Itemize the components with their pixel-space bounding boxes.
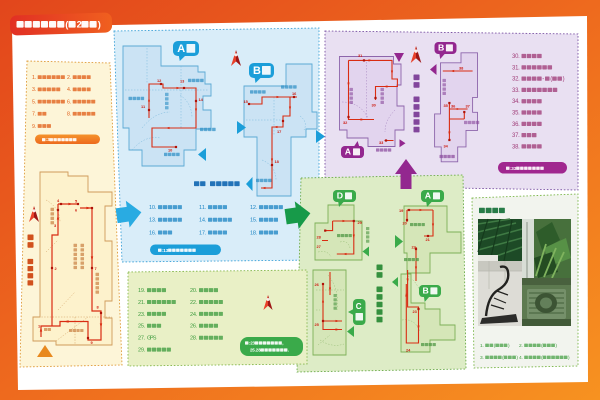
svg-text:.: .	[522, 344, 523, 349]
svg-text:A: A	[345, 147, 352, 157]
svg-text:.: .	[35, 112, 36, 118]
svg-text:30: 30	[372, 103, 376, 108]
svg-text:A: A	[425, 191, 432, 201]
svg-text:): )	[98, 20, 101, 30]
svg-text:.: .	[288, 348, 289, 353]
svg-text:.: .	[35, 124, 36, 130]
svg-text:.: .	[483, 356, 484, 361]
svg-text:B: B	[423, 286, 429, 296]
svg-text:-: -	[542, 77, 544, 83]
svg-text:10: 10	[168, 148, 172, 153]
svg-text:.: .	[70, 87, 71, 93]
svg-text:.: .	[522, 356, 523, 361]
svg-text:.: .	[35, 87, 36, 93]
svg-text:.: .	[35, 99, 36, 105]
svg-text:37: 37	[466, 104, 470, 109]
svg-text:2: 2	[77, 20, 82, 30]
svg-text:17: 17	[277, 129, 281, 134]
svg-text:.: .	[70, 112, 71, 118]
svg-text:.: .	[70, 75, 71, 81]
svg-text:): )	[563, 77, 565, 83]
svg-text:7: 7	[95, 266, 97, 271]
svg-text:B: B	[253, 65, 261, 77]
svg-text:20: 20	[403, 221, 407, 226]
svg-text:.: .	[35, 75, 36, 81]
svg-text:S: S	[153, 336, 157, 342]
svg-text:(: (	[550, 77, 552, 83]
svg-text:,: ,	[282, 341, 283, 346]
svg-text:D: D	[337, 191, 343, 201]
svg-text:B: B	[438, 43, 444, 53]
svg-text:A: A	[177, 43, 185, 55]
svg-text:.: .	[483, 344, 484, 349]
svg-text:27: 27	[317, 244, 321, 249]
svg-text:C: C	[356, 302, 362, 311]
svg-text:.: .	[70, 99, 71, 105]
